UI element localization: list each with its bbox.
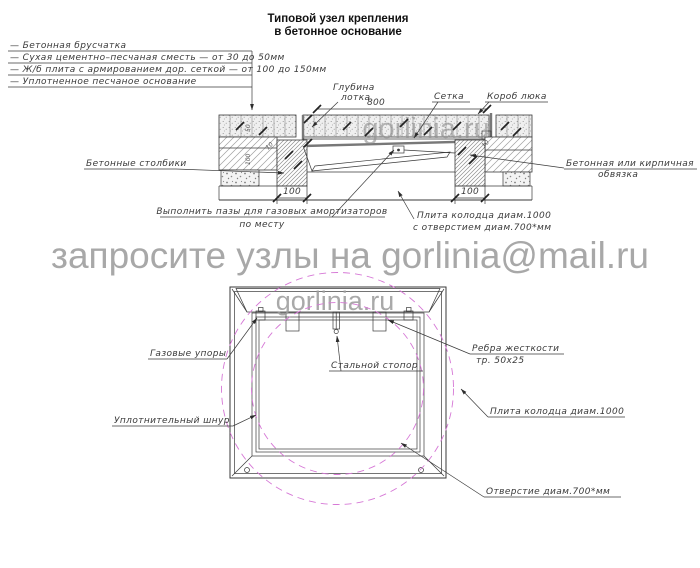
label-well-slab-plan: Плита колодца диам.1000 [490,407,624,417]
label-ribs-2: тр. 50х25 [476,356,525,366]
dim-layer-100: 100 [245,153,252,165]
gas-strut-fitting-right [404,308,413,321]
legend-item-4: — Уплотненное песчаное основание [10,77,197,87]
title-line-1: Типовой узел крепления [268,13,409,25]
dim-layer-50: 50 [245,124,252,132]
label-well-slab-1: Плита колодца диам.1000 [417,211,551,221]
title-line-2: в бетонное основание [274,26,402,38]
label-seal-cord: Уплотнительный шнур [114,416,230,426]
label-gas-struts: Газовые упоры [150,349,226,359]
label-well-slab-2: с отверстием диам.700*мм [413,223,551,233]
label-tray-depth-1: Глубина [333,83,375,93]
section-view: gorlinia.ru 800 100 100 10 10 50 100 [84,83,697,233]
label-opening: Отверстие диам.700*мм [486,487,610,497]
legend-item-3: — Ж/б плита с армированием дор. сеткой —… [10,65,327,75]
dim-100-right-text: 100 [461,187,479,197]
plan-labels: Газовые упоры Стальной стопор Ребра жест… [112,318,625,497]
layer-legend: — Бетонная брусчатка — Сухая цементно–пе… [8,41,327,110]
plan-view: gorlinia.ru Газовые упоры Стальной стопо… [112,273,625,505]
label-grooves-1: Выполнить пазы для газовых амортизаторов [156,207,387,217]
legend-item-1: — Бетонная брусчатка [10,41,126,51]
plan-inner-frame [252,313,424,456]
label-tray-depth-2: лотка [340,93,370,103]
gas-strut-fitting-left [256,308,265,321]
label-mesh: Сетка [434,92,464,102]
label-grooves-2: по месту [239,220,285,230]
watermark-section: gorlinia.ru [362,113,489,145]
legend-item-2: — Сухая цементно–песчаная сместь — от 30… [10,53,285,63]
label-ribs-1: Ребра жесткости [472,344,559,354]
drawing-canvas: Типовой узел крепления в бетонное основа… [0,0,700,568]
label-binding-2: обвязка [598,170,638,180]
technical-drawing: Типовой узел крепления в бетонное основа… [0,0,700,568]
label-steel-stopper: Стальной стопор [331,361,418,371]
dim-100-left-text: 100 [283,187,301,197]
gas-strut-mechanism [303,146,455,171]
dim-800: 800 [313,98,491,113]
label-concrete-posts: Бетонные столбики [86,159,187,169]
label-binding-1: Бетонная или кирпичная [566,159,694,169]
page-title: Типовой узел крепления в бетонное основа… [268,13,409,38]
label-hatch-box: Короб люка [487,92,547,102]
watermark-banner: запросите узлы на gorlinia@mail.ru [51,235,649,276]
